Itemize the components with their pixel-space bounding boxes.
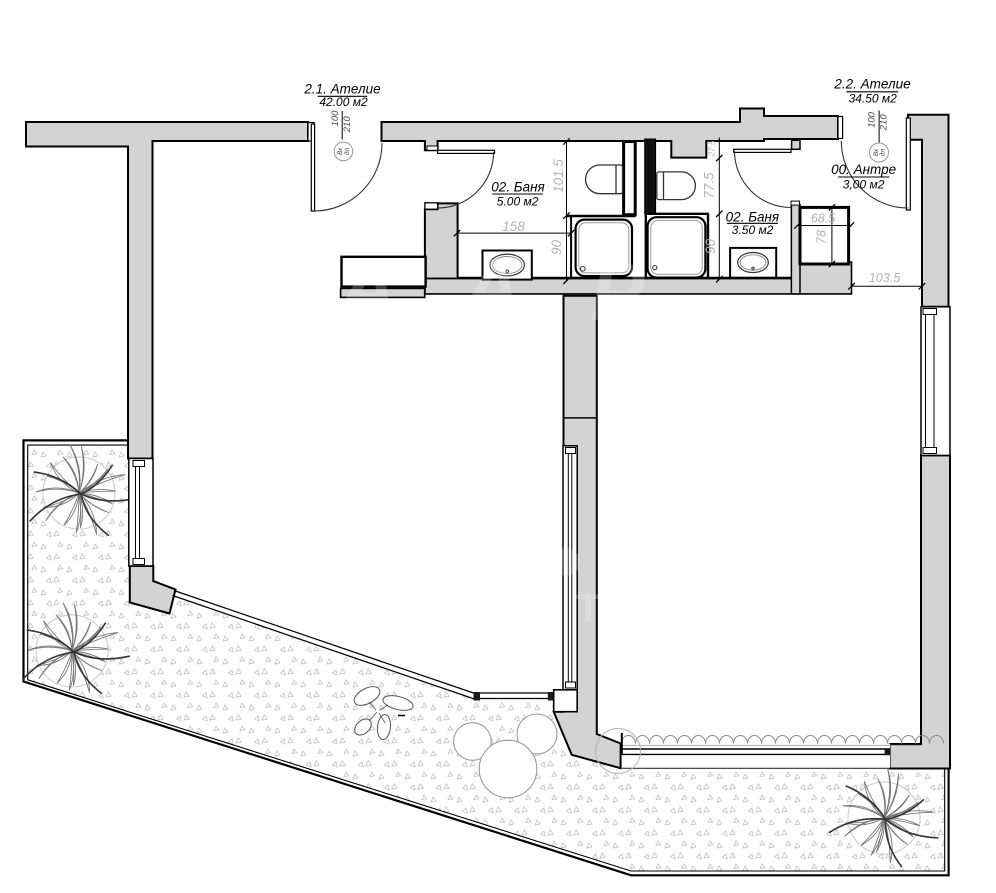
- svg-text:210: 210: [879, 114, 890, 132]
- svg-text:103.5: 103.5: [869, 271, 900, 285]
- svg-text:3.50 м2: 3.50 м2: [732, 223, 774, 237]
- svg-text:90: 90: [703, 239, 718, 255]
- svg-text:34.50 м2: 34.50 м2: [849, 91, 898, 105]
- svg-text:5.00 м2: 5.00 м2: [497, 194, 539, 208]
- svg-text:42.00 м2: 42.00 м2: [319, 95, 368, 109]
- svg-text:77.5: 77.5: [702, 172, 717, 199]
- svg-text:78: 78: [815, 230, 829, 244]
- svg-text:100: 100: [867, 111, 878, 128]
- svg-text:101.5: 101.5: [551, 159, 566, 193]
- svg-text:27.5: 27.5: [708, 140, 717, 157]
- svg-text:02. Баня: 02. Баня: [491, 180, 544, 195]
- svg-text:Р: Р: [590, 247, 645, 338]
- svg-text:158: 158: [502, 219, 525, 234]
- svg-text:90: 90: [549, 240, 564, 256]
- svg-text:дл: дл: [878, 149, 886, 156]
- svg-text:00. Антре: 00. Антре: [831, 162, 896, 177]
- svg-text:Т: Т: [576, 587, 600, 631]
- svg-text:210: 210: [342, 116, 353, 134]
- svg-text:3,00 м2: 3,00 м2: [843, 178, 885, 192]
- svg-text:дл: дл: [343, 147, 351, 154]
- svg-text:100: 100: [330, 110, 341, 127]
- svg-text:А: А: [460, 243, 521, 334]
- svg-text:2.2. Ателие: 2.2. Ателие: [833, 77, 910, 92]
- svg-text:А: А: [336, 243, 397, 334]
- svg-text:68.5: 68.5: [811, 212, 835, 226]
